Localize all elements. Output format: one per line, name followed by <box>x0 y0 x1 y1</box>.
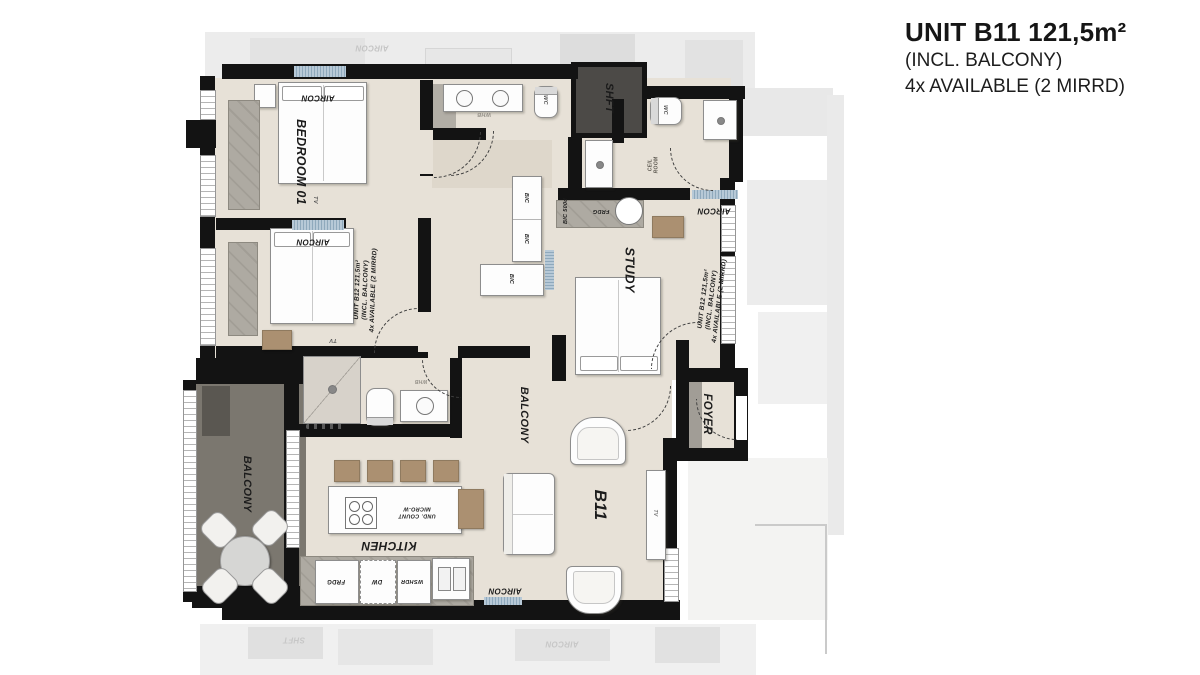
ghost-block <box>655 627 720 663</box>
drain <box>328 385 337 394</box>
door-gap <box>428 346 458 358</box>
wardrobe-bic <box>228 242 258 336</box>
burner <box>349 501 360 512</box>
microwave-label: UND. COUNT MICRO-W <box>398 506 436 519</box>
shower <box>303 356 361 424</box>
ghost-unit-right <box>758 312 828 404</box>
round-basin <box>615 197 643 225</box>
room-label-balcony: BALCONY <box>241 456 253 513</box>
shower <box>703 100 737 140</box>
room-label-study: STUDY <box>623 247 638 293</box>
burner <box>349 514 360 525</box>
shaft-label: SHFT <box>603 83 615 113</box>
armchair <box>566 566 622 614</box>
aircon-unit <box>484 597 522 605</box>
basin-whb <box>400 390 448 422</box>
balcony-slider-door <box>286 430 300 548</box>
shower <box>585 140 613 188</box>
aircon-unit <box>692 190 738 199</box>
microwave-line1: UND. COUNT <box>398 512 436 519</box>
tv-label: TV <box>329 337 337 343</box>
ghost-block <box>338 629 433 665</box>
burner <box>362 501 373 512</box>
room-label-foyer: FOYER <box>701 393 713 434</box>
ceil-room-line2: ROOM <box>654 157 660 174</box>
ceil-room-label: CEIL ROOM <box>649 157 660 174</box>
cistern <box>367 417 393 425</box>
cistern <box>535 87 557 95</box>
room-label-balcony-living: BALCONY <box>518 387 530 444</box>
page-availability: 4x AVAILABLE (2 MIRRD) <box>905 76 1125 98</box>
page-title: UNIT B11 121,5m² <box>905 17 1126 48</box>
wc-label: WC <box>542 95 548 105</box>
planter <box>202 386 230 436</box>
bar-stool <box>334 460 360 482</box>
armchair <box>570 417 626 465</box>
cupboard-bic <box>512 176 542 262</box>
whb-label: WHB <box>477 111 491 117</box>
microwave-line2: MICRO-W <box>398 506 436 513</box>
wall-segment <box>186 120 216 148</box>
bar-stool <box>400 460 426 482</box>
aircon-label: AIRCON <box>697 207 730 216</box>
ghost-unit-right <box>747 180 827 305</box>
wall-segment <box>196 358 306 384</box>
aircon-label: AIRCON <box>301 94 334 103</box>
window <box>200 90 216 120</box>
drain <box>596 161 604 169</box>
cistern <box>651 98 659 124</box>
tv-label: TV <box>312 196 318 204</box>
door-gap <box>420 130 433 174</box>
wc-label: WC <box>662 105 668 115</box>
tv-label: TV <box>652 510 658 517</box>
bic-label: BIC <box>523 193 529 203</box>
bic-label: BIC <box>508 274 514 284</box>
aircon-label: AIRCON <box>488 587 521 596</box>
sofa <box>503 473 555 555</box>
unit-label-b11: B11 <box>590 490 610 521</box>
ghost-shft-label: SHFT <box>283 636 305 645</box>
sink-bowl <box>453 567 466 591</box>
toilet-wc <box>366 388 394 426</box>
page-subtitle: (INCL. BALCONY) <box>905 50 1062 72</box>
armchair-seat <box>577 427 619 460</box>
sofa-cushion-line <box>513 514 553 515</box>
neighbor-unit-note: UNIT B12 121,5m² (INCL. BALCONY) 4x AVAI… <box>353 247 380 332</box>
towel-rail <box>306 424 346 429</box>
washer-dryer-label: WSHDR <box>401 578 423 584</box>
bed-divider <box>618 280 619 372</box>
ghost-aircon-label: AIRCON <box>545 640 578 649</box>
burner <box>362 514 373 525</box>
ghost-terrace-outline <box>755 524 827 654</box>
wall-segment <box>183 380 196 390</box>
window <box>664 548 679 602</box>
wall-segment <box>552 335 566 381</box>
window <box>200 248 216 346</box>
armchair-seat <box>573 571 615 604</box>
hob <box>345 497 377 529</box>
balcony-railing <box>183 390 197 592</box>
cupboard-divider <box>513 219 541 220</box>
room-label-kitchen: KITCHEN <box>361 539 416 553</box>
room-label-bedroom01: BEDROOM 01 <box>294 119 308 205</box>
island-end-counter <box>458 489 484 529</box>
basin-bowl <box>456 90 473 107</box>
basin-bowl <box>492 90 509 107</box>
bic-500d-label: BIC 500d <box>563 198 569 224</box>
wall-segment <box>222 64 578 79</box>
whb-label: WHB <box>415 378 428 384</box>
bed-double <box>575 277 661 375</box>
bar-stool <box>433 460 459 482</box>
aircon-label: AIRCON <box>296 238 329 247</box>
floorplan-canvas: BEDROOM 01 AIRCON TV AIRCON TV STUDY BIC… <box>0 0 1200 675</box>
aircon-unit <box>292 220 344 230</box>
ghost-aircon-label: AIRCON <box>355 44 388 53</box>
ghost-band-right <box>827 95 844 535</box>
kitchen-sink <box>432 558 470 600</box>
wall-segment <box>568 137 582 192</box>
sofa-back <box>504 474 513 554</box>
drain <box>717 117 725 125</box>
pillow <box>580 356 618 371</box>
aircon-unit <box>545 250 554 290</box>
fridge-label: FRDG <box>593 208 610 214</box>
sink-bowl <box>438 567 451 591</box>
dishwasher-label: DW <box>372 578 383 584</box>
fridge-label: FRDG <box>327 578 345 584</box>
window <box>200 155 216 217</box>
ghost-unit-right <box>743 88 833 136</box>
bench <box>262 330 292 350</box>
entry-door-gap <box>736 396 747 440</box>
basin-bowl <box>416 397 434 415</box>
aircon-unit <box>294 66 346 77</box>
wardrobe-bic <box>228 100 260 210</box>
chair <box>652 216 684 238</box>
kitchen-island <box>328 486 462 534</box>
bar-stool <box>367 460 393 482</box>
double-basin <box>443 84 523 112</box>
bic-label: BIC <box>523 234 529 244</box>
